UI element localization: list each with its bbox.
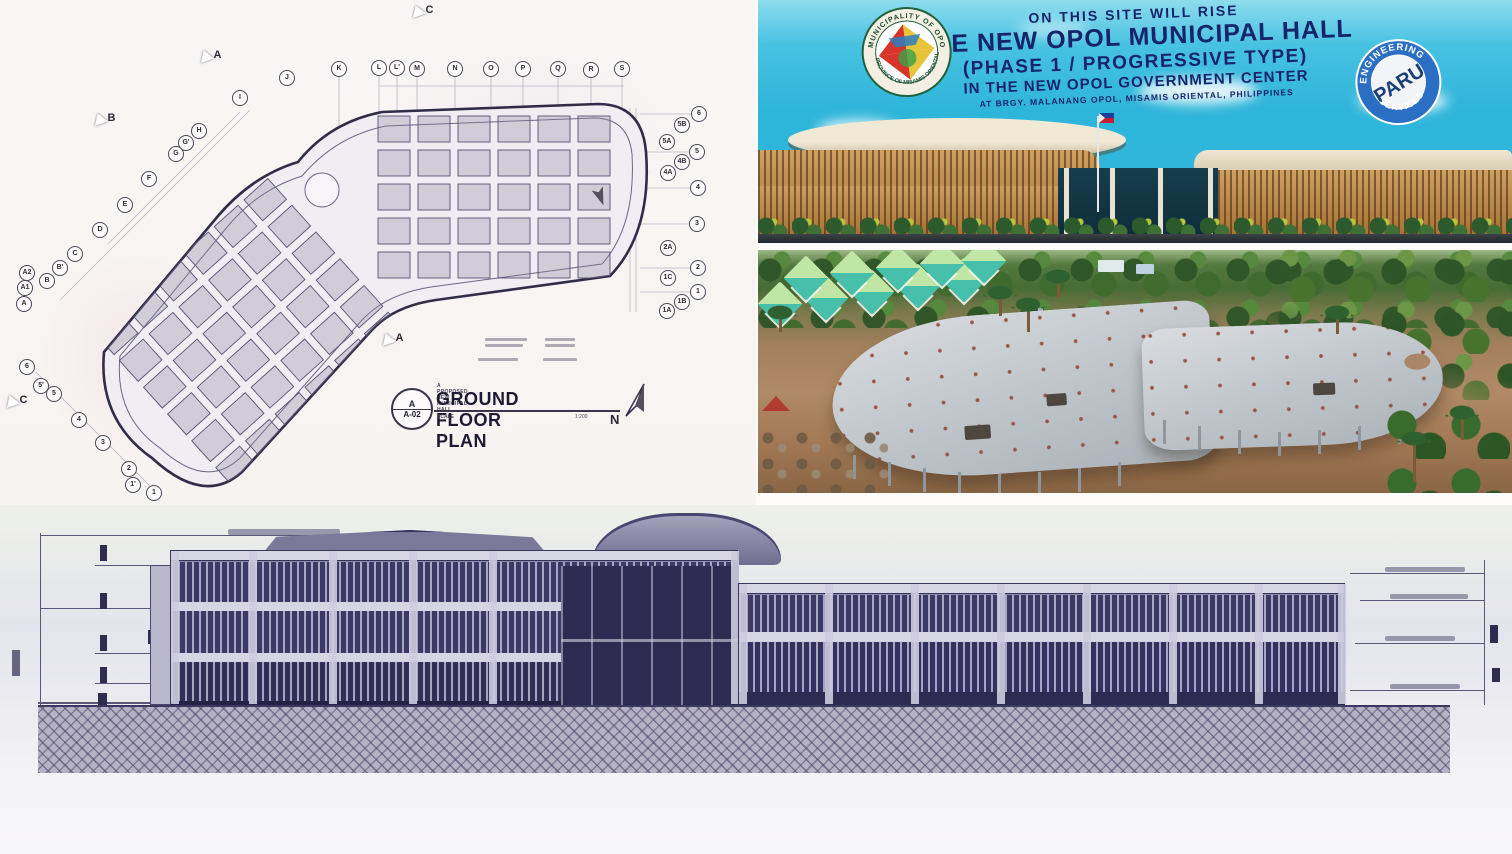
facade-pier [489,551,497,704]
elevation-left-annex [150,565,172,705]
grid-bubble-6: 6 [19,359,35,375]
foreground-rocks [758,428,888,493]
section-marker-triangle [379,330,396,345]
grid-bubble-3: 3 [95,435,111,451]
facade-pier [1255,584,1263,704]
architectural-collage: IJKLL'MNOPQRSHG'GFEDCB'BA2A1A65'54321'16… [0,0,1512,854]
grid-bubble-1: 1 [146,485,162,501]
palm-tree [1333,310,1341,334]
palm-crown [1013,296,1043,313]
billboard-photo-panel: ON THIS SITE WILL RISE THE NEW OPOL MUNI… [758,0,1512,243]
grid-bubble-m: M [409,61,425,77]
grid-bubble-d: D [92,222,108,238]
facade-pier [171,551,179,704]
palm-tree [1410,436,1418,482]
palm-crown [1447,404,1477,421]
grid-bubble-5: 5 [689,144,705,160]
section-marker-c: C [411,4,434,16]
courtyard-circle [305,173,339,207]
palm-tree [1458,410,1466,440]
support-pillar [1078,468,1081,492]
section-marker-triangle [197,47,214,62]
facade-pier [911,584,919,704]
plan-scale-label: SCALE [437,414,454,420]
facade-pier [1169,584,1177,704]
section-marker-label: C [426,4,434,16]
grid-bubble-2a: 2A [660,240,676,256]
facade-pier [329,551,337,704]
grid-bubble-1b: 1B [674,294,690,310]
grid-bubble-1c: 1C [660,270,676,286]
grid-bubble-n: N [447,61,463,77]
section-marker-triangle [409,2,426,17]
grid-bubble-l: L [371,60,387,76]
support-pillar [1318,430,1321,454]
construction-site-photo-panel [758,250,1512,493]
grid-bubble-2: 2 [690,260,706,276]
plan-scale-value: 1:200 [575,414,588,420]
grid-bubble-4b: 4B [674,154,690,170]
grid-bubble-a1: A1 [17,280,33,296]
grid-bubble-p: P [515,61,531,77]
support-pillar [888,462,891,486]
grid-bubble-g: G [168,146,184,162]
north-label: N [610,412,619,427]
section-marker-a: A [381,332,404,344]
grid-bubble-h: H [191,123,207,139]
plan-title: GROUND FLOOR PLAN [436,389,519,452]
red-roof-hut [762,396,790,411]
flag-pole [1097,116,1099,212]
support-pillar [998,474,1001,493]
grid-bubble-1p: 1' [125,477,141,493]
grid-bubble-lp: L' [389,60,405,76]
grid-bubble-r: R [583,62,599,78]
municipality-seal: MUNICIPALITY OF OPOL PROVINCE OF MISAMIS… [855,0,960,109]
grid-bubble-2: 2 [121,461,137,477]
section-marker-label: C [20,394,28,406]
palm-crown [765,304,795,321]
elevation-left-block [170,550,738,705]
grid-bubble-1: 1 [690,284,706,300]
section-marker-triangle [91,110,108,125]
grid-bubble-k: K [331,61,347,77]
grid-bubble-f: F [141,171,157,187]
palm-tree [776,310,784,332]
grid-bubble-bp: B' [52,260,68,276]
facade-pier [997,584,1005,704]
north-arrow-icon: N [614,382,654,431]
support-pillar [1163,420,1166,444]
support-pillar [1118,462,1121,486]
palm-tree [996,290,1004,316]
grid-bubble-q: Q [550,61,566,77]
grid-bubble-3: 3 [689,216,705,232]
distant-shed [1098,260,1124,272]
front-elevation-panel: A A-06 A PROPOSED NEW MUNICIPAL HALL FRO… [0,505,1512,854]
facade-pier [1338,584,1346,704]
grid-bubble-4a: 4A [660,165,676,181]
support-pillar [958,472,961,493]
support-pillar [1238,430,1241,454]
section-marker-label: A [396,332,404,344]
palm-crown [1322,304,1352,321]
ground-hatch [38,705,1450,773]
grid-bubble-a2: A2 [19,265,35,281]
grid-bubble-1a: 1A [659,303,675,319]
support-pillar [923,468,926,492]
grid-bubble-o: O [483,61,499,77]
section-marker-b: B [93,112,116,124]
palm-crown [1399,430,1429,447]
grid-bubble-5b: 5B [674,117,690,133]
grid-bubble-e: E [117,197,133,213]
grid-bubble-4: 4 [690,180,706,196]
grid-bubble-s: S [614,61,630,77]
facade-pier [1083,584,1091,704]
distant-shed [1136,264,1154,274]
section-marker-label: A [214,49,222,61]
ground-floor-plan-panel: IJKLL'MNOPQRSHG'GFEDCB'BA2A1A65'54321'16… [0,0,756,505]
palm-crown [1043,268,1073,285]
grid-bubble-i: I [232,90,248,106]
grid-bubble-5a: 5A [659,134,675,150]
facade-pier [249,551,257,704]
elevation-atrium-glass [561,566,739,706]
elevation-right-block [738,583,1345,705]
palm-crown [985,284,1015,301]
grid-bubble-5: 5 [46,386,62,402]
rendering-right-parapet [1194,150,1512,172]
plan-sheet-number: A-02 [403,410,420,419]
grid-bubble-b: B [39,273,55,289]
philippine-flag [1099,113,1114,123]
palm-tree [1054,274,1062,298]
support-pillar [1198,426,1201,450]
grid-bubble-6: 6 [691,106,707,122]
section-marker-label: B [108,112,116,124]
support-pillar [1278,432,1281,456]
grid-bubble-j: J [279,70,295,86]
section-marker-c: C [5,394,28,406]
plan-section-ref: A [393,399,431,410]
support-pillar [1358,426,1361,450]
facade-pier [409,551,417,704]
facade-pier [739,584,747,704]
grid-bubble-a: A [16,296,32,312]
section-marker-a: A [199,49,222,61]
palm-tree [1024,302,1032,332]
section-marker-triangle [3,392,20,407]
facade-pier [825,584,833,704]
grid-bubble-4: 4 [71,412,87,428]
support-pillar [1038,472,1041,493]
foreground-pavement [758,234,1512,243]
grid-bubble-c: C [67,246,83,262]
